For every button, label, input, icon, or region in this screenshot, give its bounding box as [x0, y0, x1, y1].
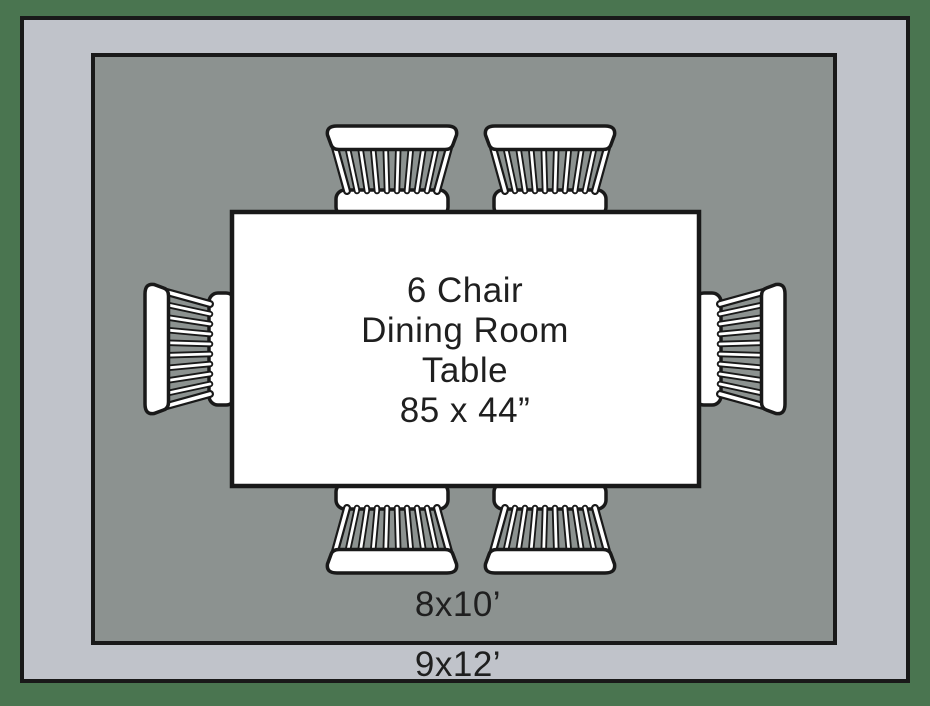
- table-label-line-3: Table: [422, 351, 508, 390]
- room-diagram: 6 Chair Dining Room Table 85 x 44” 8x10’…: [0, 0, 930, 706]
- table-label-line-2: Dining Room: [361, 311, 569, 350]
- outer-rug-size-label: 9x12’: [415, 645, 501, 684]
- table-label-line-4: 85 x 44”: [400, 391, 530, 430]
- inner-rug-size-label: 8x10’: [415, 585, 501, 624]
- table-label-line-1: 6 Chair: [407, 271, 523, 310]
